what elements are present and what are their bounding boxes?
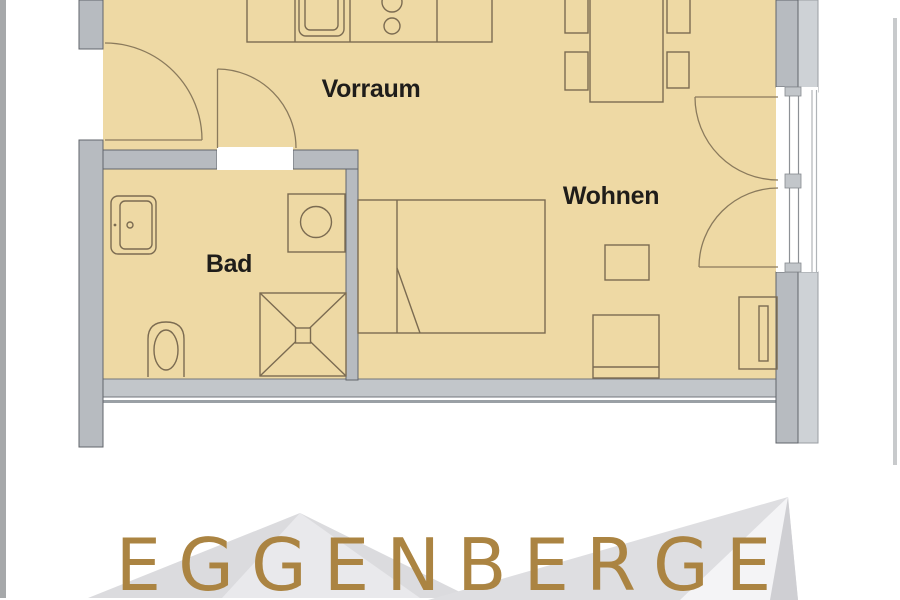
balcony-railing	[893, 18, 897, 465]
door-handle-block	[785, 174, 801, 188]
right-wall-top	[776, 0, 798, 87]
right-wall-outer-top	[798, 0, 818, 92]
left-page-border	[0, 0, 6, 598]
left-wall-main	[79, 140, 103, 447]
bath-right-wall	[346, 169, 358, 380]
apartment-floor	[103, 0, 776, 379]
bath-top-wall-right	[293, 150, 358, 169]
left-wall-top-segment	[79, 0, 103, 49]
right-wall-outer-bottom	[798, 272, 818, 443]
room-label-vorraum: Vorraum	[322, 75, 421, 103]
bottom-exterior-wall	[79, 379, 798, 403]
floor-plan-canvas: Vorraum Wohnen Bad EGGENBERGE	[0, 0, 900, 600]
brand-wordmark: EGGENBERGE	[116, 523, 789, 600]
bath-top-wall-left	[103, 150, 217, 169]
room-label-bad: Bad	[206, 250, 252, 278]
right-wall-bottom	[776, 272, 798, 443]
shower-drain	[296, 328, 311, 343]
bath-door-opening	[217, 147, 293, 170]
room-label-wohnen: Wohnen	[563, 182, 659, 210]
floor-plan-page: Vorraum Wohnen Bad EGGENBERGE	[0, 0, 900, 600]
